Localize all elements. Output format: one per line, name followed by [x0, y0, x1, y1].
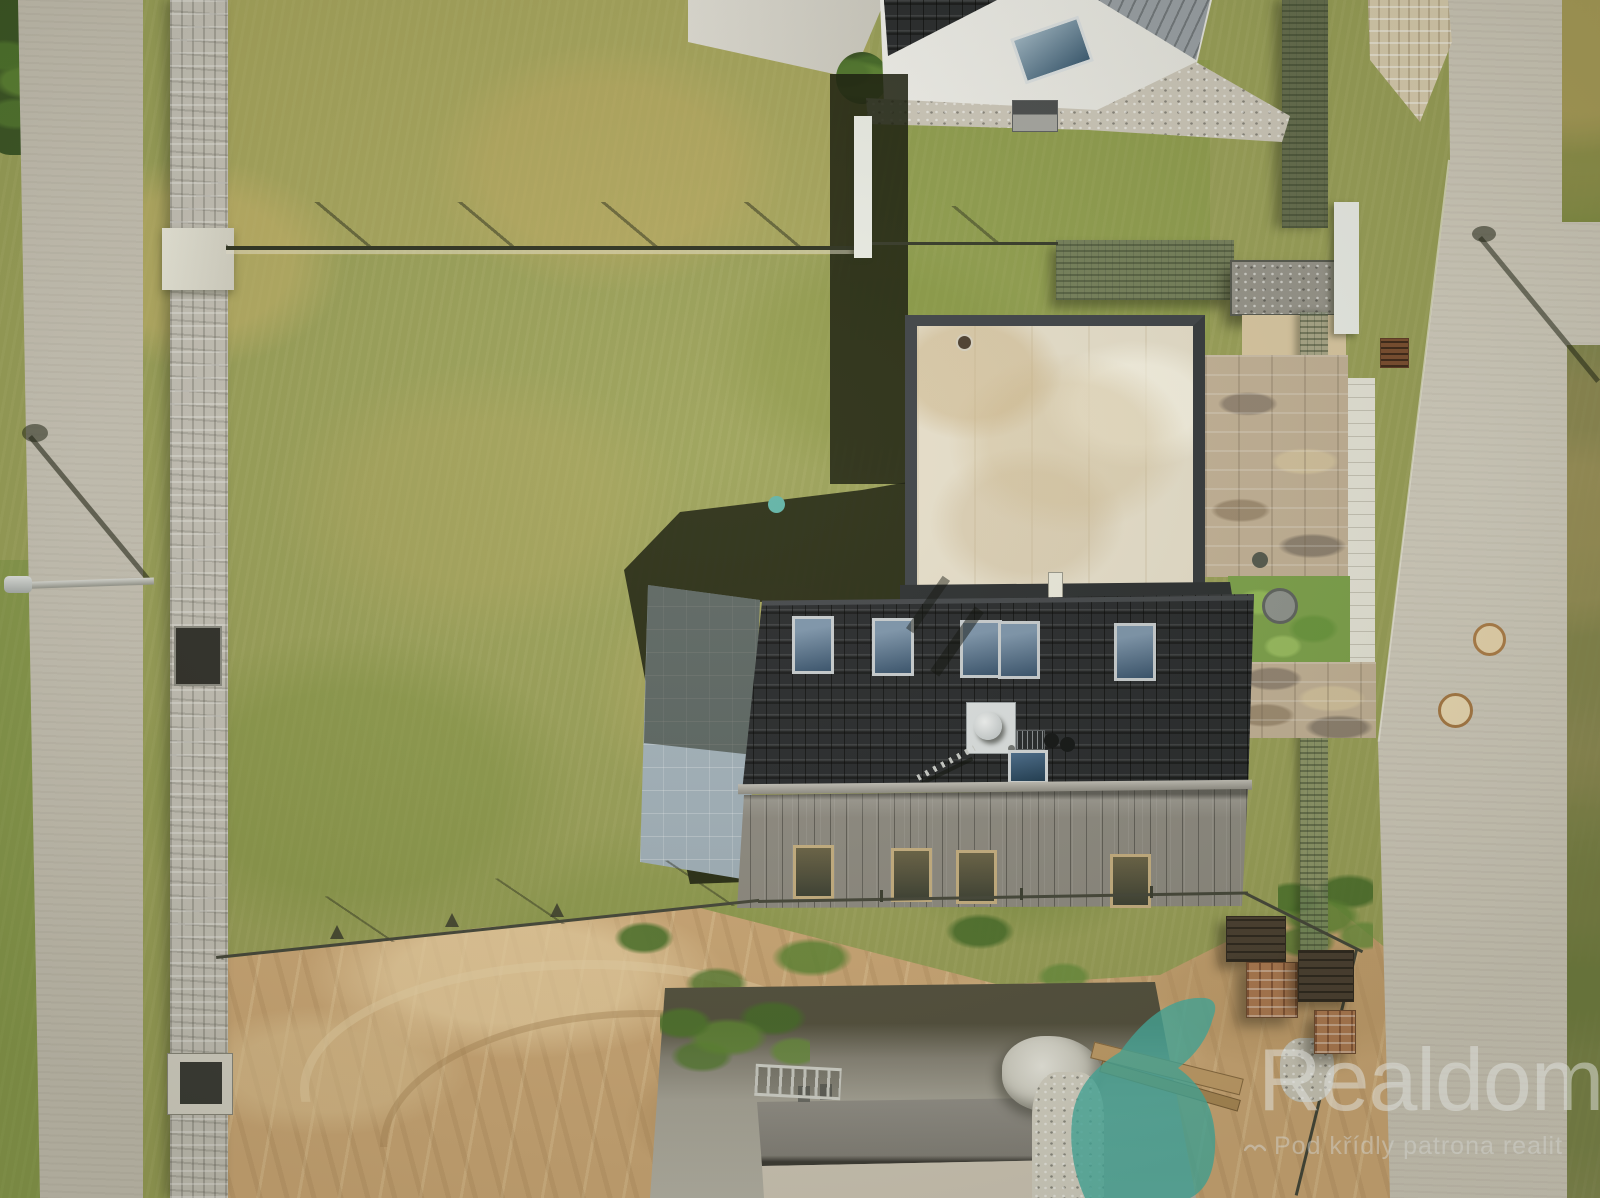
watermark-logo	[1060, 985, 1240, 1198]
bird-icon	[1244, 1139, 1266, 1155]
roof-vent	[956, 334, 973, 351]
gabion-wall	[1230, 260, 1336, 316]
flat-roof-garage	[905, 315, 1205, 587]
facade-window-1	[793, 845, 834, 899]
terrace-shadow	[640, 585, 762, 755]
roof-grille-vent	[1016, 730, 1045, 750]
watermark-tagline: Pod křídly patrona realit	[1274, 1134, 1563, 1159]
sett-wall-path	[170, 0, 228, 1198]
driveway-ramp	[162, 228, 234, 290]
watermark-tagline-row: Pod křídly patrona realit	[1244, 1134, 1563, 1159]
garden-ball	[768, 496, 785, 513]
utility-box-lid	[180, 1062, 222, 1104]
watermark-brand: Realdomus	[1258, 1036, 1600, 1124]
white-wall-vertical	[854, 116, 872, 258]
boundary-fence-2	[872, 242, 1058, 245]
brick-pallet-1	[1246, 962, 1298, 1018]
manhole-sand-2	[1438, 693, 1473, 728]
hedge-fence-vertical	[1282, 0, 1328, 228]
skylight-1	[792, 616, 834, 674]
fence-foot-2	[445, 913, 459, 927]
facade-window-4	[1110, 854, 1151, 908]
pallet-dark-1	[1226, 916, 1286, 962]
planted-fence-horizontal	[1056, 240, 1234, 300]
white-garden-wall	[1334, 202, 1359, 334]
utility-panel	[174, 626, 222, 686]
construction-slab	[760, 1160, 1078, 1198]
skylight-4	[998, 621, 1040, 679]
vent-cowl-1	[1044, 733, 1059, 748]
fence-foot-3	[550, 903, 564, 917]
facade-window-2	[891, 848, 932, 902]
logo-shape	[1071, 998, 1215, 1198]
construction-roof	[756, 1096, 1070, 1166]
fence-post-c	[1150, 886, 1153, 898]
fence-post-a	[880, 890, 883, 902]
boundary-fence	[226, 246, 858, 250]
fence-shadows-2	[872, 206, 1058, 244]
skylight-low	[1008, 750, 1048, 784]
fence-post-b	[1020, 888, 1023, 900]
heat-pump-unit	[1012, 100, 1058, 132]
skylight-5	[1114, 623, 1156, 681]
patio-upper	[1205, 355, 1348, 577]
aerial-photo: Realdomus Pod křídly patrona realit	[0, 0, 1600, 1198]
manhole-small-dark	[1252, 552, 1268, 568]
fence-shadows	[226, 202, 858, 248]
lamp-head-shadow-right	[1472, 226, 1496, 242]
drain-grate	[1380, 338, 1409, 368]
lamp-head	[4, 576, 32, 593]
vent-cowl-2	[1060, 737, 1075, 752]
satellite-dish	[974, 712, 1002, 740]
pallet-dark-2	[1298, 950, 1354, 1002]
manhole-cover	[1262, 588, 1298, 624]
lamp-head-shadow-left	[22, 424, 48, 442]
verge-top-right	[1562, 0, 1600, 222]
manhole-sand-1	[1473, 623, 1506, 656]
ladder	[754, 1064, 842, 1100]
fence-foot-1	[330, 925, 344, 939]
